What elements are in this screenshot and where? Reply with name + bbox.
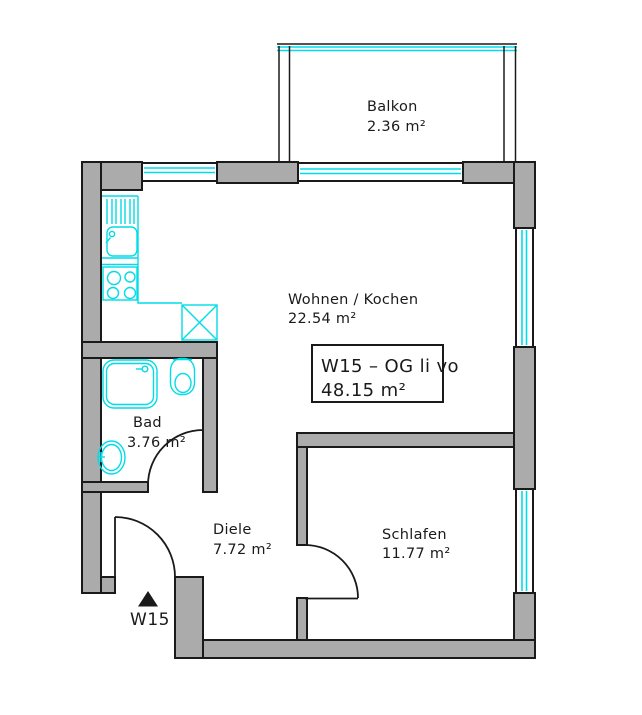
floor-plan-drawing: Balkon 2.36 m² Wohnen / Kochen 22.54 m² …	[0, 0, 642, 715]
unit-info-box: W15 – OG li vo 48.15 m²	[312, 345, 459, 402]
wall-right-middle	[514, 347, 535, 489]
counter-edge	[138, 196, 182, 303]
balcony-name-label: Balkon	[367, 99, 418, 115]
floor-plan-page: Balkon 2.36 m² Wohnen / Kochen 22.54 m² …	[0, 0, 642, 715]
wall-entrance-left-stub	[101, 577, 115, 593]
bedroom-area-label: 11.77 m²	[382, 546, 450, 562]
stove-icon	[103, 267, 137, 300]
entrance-arrow-icon	[138, 591, 158, 607]
kitchen-window	[142, 163, 217, 181]
living-area-label: 22.54 m²	[288, 311, 356, 327]
wall-top-middle	[217, 162, 298, 183]
fridge-icon	[182, 305, 217, 340]
entrance-marker: W15	[130, 591, 170, 630]
bedroom-name-label: Schlafen	[382, 527, 447, 543]
kitchen-sink-icon	[106, 227, 137, 256]
wall-living-bedroom	[297, 433, 514, 447]
toilet-icon	[171, 359, 195, 395]
wall-entrance-step	[175, 577, 203, 658]
entrance-unit-label: W15	[130, 610, 170, 630]
hall-area-label: 7.72 m²	[213, 542, 272, 558]
dish-drainer-icon	[107, 199, 134, 224]
doors	[115, 430, 358, 599]
wall-bath-bottom	[82, 482, 148, 492]
balcony-door	[298, 163, 463, 181]
living-room-window	[516, 228, 533, 347]
balcony-area-label: 2.36 m²	[367, 119, 426, 135]
washbasin-icon	[97, 441, 125, 474]
bedroom-window	[516, 489, 533, 593]
shower-icon	[103, 360, 157, 408]
hall-name-label: Diele	[213, 522, 252, 538]
wall-right-upper	[514, 162, 535, 228]
bedroom-door	[305, 545, 358, 599]
wall-bedroom-left-upper	[297, 447, 307, 545]
unit-info-area: 48.15 m²	[321, 380, 406, 401]
bath-name-label: Bad	[133, 415, 162, 431]
wall-bedroom-left-stub	[297, 598, 307, 640]
unit-info-title: W15 – OG li vo	[321, 356, 459, 377]
walls	[82, 162, 535, 658]
bath-area-label: 3.76 m²	[127, 435, 186, 451]
entrance-door	[115, 517, 175, 577]
wall-bottom	[203, 640, 535, 658]
wall-bath-right	[203, 358, 217, 492]
kitchen-fixtures	[102, 196, 217, 340]
wall-kitchen-bath	[82, 342, 217, 358]
wall-left	[82, 162, 101, 593]
living-name-label: Wohnen / Kochen	[288, 292, 418, 308]
